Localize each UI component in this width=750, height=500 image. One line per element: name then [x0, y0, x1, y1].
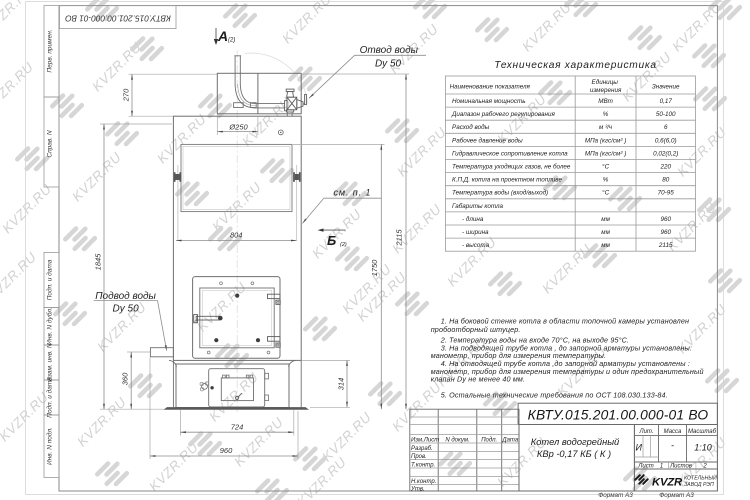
svg-text:Отвод воды: Отвод воды	[360, 45, 419, 56]
svg-text:Масштаб: Масштаб	[688, 429, 717, 435]
svg-text:Б: Б	[327, 233, 336, 248]
svg-text:KVZR.RU: KVZR.RU	[69, 149, 124, 204]
svg-text:5. Остальные технические треб: 5. Остальные технические требования по О…	[441, 390, 668, 399]
svg-text:960: 960	[660, 216, 671, 223]
svg-text:Dy 50: Dy 50	[375, 58, 402, 69]
svg-text:Листов: Листов	[669, 464, 692, 470]
svg-text:KVZR.RU: KVZR.RU	[0, 181, 54, 236]
svg-text:Температура уходящих газов, не: Температура уходящих газов, не более	[452, 163, 571, 171]
svg-text:Рабочее давление воды: Рабочее давление воды	[452, 136, 523, 144]
svg-text:Взам. инв. N: Взам. инв. N	[47, 343, 54, 381]
svg-text:- высота: - высота	[462, 242, 490, 249]
svg-text:70-95: 70-95	[658, 190, 675, 197]
svg-text:Ø250: Ø250	[228, 123, 248, 132]
svg-text:Габариты котла: Габариты котла	[452, 202, 504, 210]
svg-text:пробоотборный штуцер.: пробоотборный штуцер.	[431, 325, 521, 334]
svg-text:Температура воды (вход/выход): Температура воды (вход/выход)	[452, 189, 548, 197]
svg-text:КВТУ.015.201.00.000-01 ВО: КВТУ.015.201.00.000-01 ВО	[65, 14, 171, 24]
svg-text:Т.контр.: Т.контр.	[411, 463, 435, 469]
svg-text:Лит.: Лит.	[638, 429, 653, 435]
svg-text:270: 270	[122, 88, 131, 102]
svg-text:КВр -0,17 КБ ( К ): КВр -0,17 КБ ( К )	[537, 449, 611, 459]
svg-text:Инв. N дубл.: Инв. N дубл.	[46, 307, 54, 345]
svg-text:Инв. N подл.: Инв. N подл.	[46, 427, 54, 465]
svg-text:N докум.: N докум.	[445, 438, 469, 444]
svg-text:960: 960	[660, 229, 671, 236]
svg-text:50-100: 50-100	[656, 111, 676, 118]
svg-text:960: 960	[220, 446, 233, 455]
svg-text:Перв. примен.: Перв. примен.	[47, 29, 54, 72]
svg-text:МПа (кгс/см² ): МПа (кгс/см² )	[585, 150, 626, 157]
svg-text:Котел водогрейный: Котел водогрейный	[531, 437, 619, 447]
svg-text:°С: °С	[602, 189, 610, 197]
svg-text:мм: мм	[601, 229, 610, 236]
svg-text:Гидравлическое сопротивление к: Гидравлическое сопротивление котла	[452, 149, 568, 157]
svg-text:Пров.: Пров.	[411, 454, 427, 460]
svg-text:(2): (2)	[228, 38, 235, 44]
svg-text:Справ. N: Справ. N	[47, 130, 54, 158]
svg-text:KVZR.RU: KVZR.RU	[519, 0, 574, 54]
svg-text:724: 724	[231, 423, 244, 432]
svg-text:Подп. и дата: Подп. и дата	[46, 259, 54, 300]
svg-text:Дата: Дата	[501, 438, 518, 444]
svg-text:КОТЕЛЬНЫЙ: КОТЕЛЬНЫЙ	[684, 474, 717, 482]
svg-text:220: 220	[659, 164, 671, 171]
svg-text:Dy 50: Dy 50	[113, 304, 140, 315]
svg-text:Формат А3: Формат А3	[659, 492, 694, 499]
svg-text:Формат А3: Формат А3	[598, 492, 633, 499]
svg-text:KVZR.RU: KVZR.RU	[0, 59, 36, 114]
svg-text:6: 6	[664, 124, 668, 131]
svg-text:°С: °С	[602, 163, 610, 171]
svg-text:KVZR.RU: KVZR.RU	[674, 124, 729, 179]
svg-text:2115: 2115	[658, 242, 673, 249]
svg-text:МВт: МВт	[598, 98, 613, 105]
svg-text:KVZR: KVZR	[652, 477, 683, 489]
svg-text:клапан Dy не менее 40 мм.: клапан Dy не менее 40 мм.	[431, 375, 525, 384]
svg-text:- ширина: - ширина	[462, 229, 489, 236]
svg-text:Лист: Лист	[637, 464, 653, 470]
svg-text:KVZR.RU: KVZR.RU	[389, 379, 444, 434]
svg-text:И: И	[635, 443, 642, 453]
svg-text:см. п. 1: см. п. 1	[334, 187, 372, 197]
svg-text:1: 1	[660, 464, 663, 470]
svg-text:Масса: Масса	[664, 429, 682, 435]
svg-text:804: 804	[230, 231, 243, 240]
svg-text:KVZR.RU: KVZR.RU	[146, 439, 201, 494]
svg-text:KVZR.RU: KVZR.RU	[74, 394, 129, 449]
svg-text:Наименование показателя: Наименование показателя	[450, 84, 531, 91]
svg-text:Значение: Значение	[652, 84, 680, 91]
svg-text:0,17: 0,17	[660, 98, 673, 105]
svg-text:Подп.: Подп.	[481, 438, 497, 444]
svg-text:ЗАВОД РЭП: ЗАВОД РЭП	[684, 482, 714, 488]
svg-text:KVZR.RU: KVZR.RU	[619, 49, 674, 104]
svg-text:м ³/ч: м ³/ч	[599, 124, 613, 131]
svg-text:Расход воды: Расход воды	[452, 123, 490, 131]
svg-text:-: -	[671, 441, 674, 451]
svg-text:314: 314	[337, 378, 346, 391]
svg-text:KVZR.RU: KVZR.RU	[209, 179, 264, 234]
svg-text:А: А	[217, 28, 228, 44]
svg-text:Разраб.: Разраб.	[411, 446, 433, 452]
svg-text:360: 360	[121, 372, 130, 385]
svg-text:Утв.: Утв.	[410, 487, 425, 493]
svg-text:0,6(6,0): 0,6(6,0)	[655, 137, 677, 144]
svg-text:1750: 1750	[370, 259, 379, 277]
svg-text:- длина: - длина	[462, 215, 484, 223]
svg-text:KVZR.RU: KVZR.RU	[279, 0, 334, 46]
svg-text:Изм.Лист: Изм.Лист	[411, 438, 439, 444]
svg-text:Н.контр.: Н.контр.	[411, 479, 436, 485]
svg-text:КВТУ.015.201.00.000-01 ВО: КВТУ.015.201.00.000-01 ВО	[528, 408, 709, 423]
svg-text:KVZR.RU: KVZR.RU	[154, 111, 209, 166]
svg-text:%: %	[603, 111, 609, 118]
svg-text:Диапазон рабочего регулировани: Диапазон рабочего регулирования	[451, 110, 555, 118]
svg-text:KVZR.RU: KVZR.RU	[0, 249, 39, 304]
svg-text:Номинальная мощность: Номинальная мощность	[452, 98, 526, 105]
svg-text:Подп. и дата: Подп. и дата	[46, 377, 54, 418]
svg-text:KVZR.RU: KVZR.RU	[389, 201, 444, 256]
svg-text:МПа (кгс/см² ): МПа (кгс/см² )	[585, 137, 626, 144]
svg-text:KVZR.RU: KVZR.RU	[539, 241, 594, 296]
svg-text:2115: 2115	[395, 229, 404, 247]
svg-text:Техническая характеристика: Техническая характеристика	[494, 60, 656, 71]
svg-text:0,02(0,2): 0,02(0,2)	[653, 150, 678, 157]
svg-text:мм: мм	[601, 216, 610, 223]
svg-text:1845: 1845	[94, 253, 103, 271]
svg-text:KVZR.RU: KVZR.RU	[0, 0, 36, 36]
svg-text:KVZR.RU: KVZR.RU	[319, 409, 374, 464]
svg-text:%: %	[603, 177, 609, 184]
svg-text:мм: мм	[601, 242, 610, 249]
svg-text:1:10: 1:10	[694, 443, 712, 453]
svg-text:80: 80	[662, 177, 670, 184]
svg-text:Единицы измерения: Единицы измерения	[590, 78, 622, 94]
svg-text:2: 2	[702, 464, 707, 470]
svg-text:К.П.Д. котла на проектном топл: К.П.Д. котла на проектном топливе	[452, 177, 562, 184]
svg-text:(2): (2)	[340, 242, 347, 248]
